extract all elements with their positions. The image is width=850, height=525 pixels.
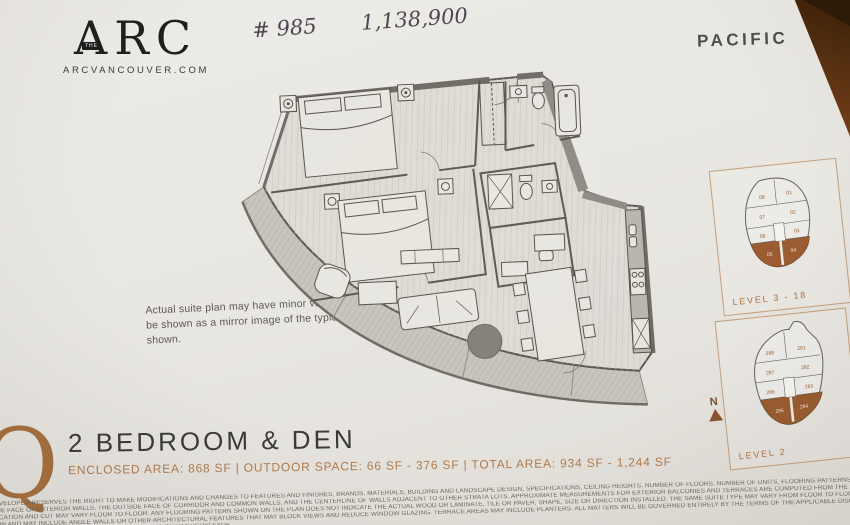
arc-website-text: ARCVANCOUVER.COM <box>52 65 220 76</box>
arc-logo: ARC THE ARCVANCOUVER.COM <box>52 12 220 76</box>
bedroom2-dresser <box>358 281 397 305</box>
floor-plan-drawing <box>219 16 717 449</box>
suite-title: 2 BEDROOM & DEN <box>68 424 356 459</box>
unit-label: 282 <box>801 364 810 371</box>
suite-areas: ENCLOSED AREA: 868 SF | OUTDOOR SPACE: 6… <box>68 455 672 477</box>
floorplan-sheet-photo: ARC THE ARCVANCOUVER.COM # 985 1,138,900… <box>0 0 850 525</box>
unit-label-highlighted: 05 <box>767 252 773 259</box>
unit-label-highlighted: 284 <box>800 404 809 411</box>
unit-label-highlighted: 04 <box>790 247 796 254</box>
arc-logo-wordmark: ARC <box>52 12 220 64</box>
keyplan-level-3-18: 08 01 07 02 06 03 05 04 LEVEL 3 - 18 <box>709 158 850 317</box>
collection-title: PACIFIC <box>697 28 789 51</box>
north-label: N <box>703 395 726 409</box>
north-indicator: N <box>703 395 727 422</box>
arc-logo-the-chip: THE <box>82 42 101 50</box>
unit-label: 288 <box>766 350 775 357</box>
unit-label: 283 <box>805 383 814 390</box>
keyplan-level-3-18-label: LEVEL 3 - 18 <box>732 290 807 308</box>
unit-label: 07 <box>759 214 765 221</box>
unit-label: 287 <box>766 370 775 377</box>
keyplan-level-2-label: LEVEL 2 <box>738 447 787 462</box>
keyplan-level-3-18-footprint: 08 01 07 02 06 03 05 04 <box>730 167 826 279</box>
unit-label: 286 <box>766 389 775 396</box>
unit-label-highlighted: 285 <box>775 408 784 415</box>
media-console <box>401 248 460 264</box>
unit-label: 01 <box>786 190 792 197</box>
keyplan-level-2-footprint: 288 281 287 282 286 283 285 284 <box>735 317 838 436</box>
unit-label: 08 <box>759 195 765 202</box>
keyplan-level-2: 288 281 287 282 286 283 285 284 LEVEL 2 <box>715 308 850 471</box>
north-arrow-icon <box>708 408 723 421</box>
unit-label: 06 <box>760 233 766 240</box>
unit-label: 281 <box>797 345 806 352</box>
unit-label: 03 <box>794 228 800 235</box>
legal-disclaimer: DEVELOPER RESERVES THE RIGHT TO MAKE MOD… <box>0 476 850 525</box>
unit-label: 02 <box>790 209 796 216</box>
